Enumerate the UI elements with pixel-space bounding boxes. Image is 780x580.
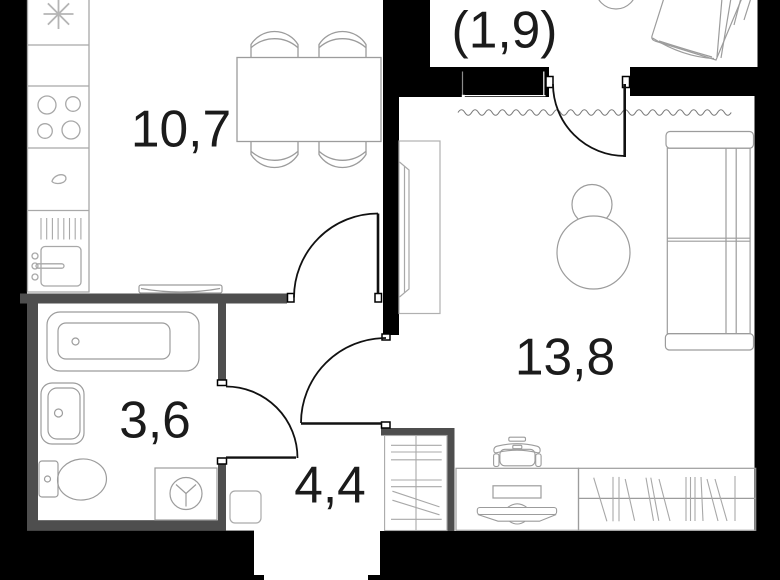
svg-text:3,6: 3,6 <box>119 391 191 449</box>
svg-text:10,7: 10,7 <box>131 100 231 158</box>
svg-text:(1,9): (1,9) <box>452 1 558 59</box>
svg-text:4,4: 4,4 <box>294 456 366 514</box>
svg-text:13,8: 13,8 <box>515 328 615 386</box>
